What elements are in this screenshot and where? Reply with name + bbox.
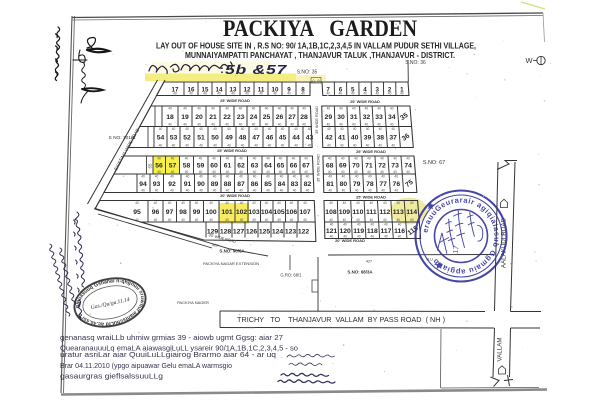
svg-text:40: 40 (231, 91, 235, 95)
svg-text:21: 21 (209, 114, 217, 121)
svg-text:108: 108 (325, 209, 337, 216)
svg-text:37: 37 (389, 135, 397, 142)
svg-text:40: 40 (225, 218, 229, 222)
svg-text:109: 109 (339, 209, 351, 216)
svg-text:40: 40 (203, 91, 207, 95)
svg-text:40: 40 (327, 122, 331, 126)
svg-text:40: 40 (292, 157, 296, 161)
svg-text:40: 40 (303, 201, 307, 205)
svg-text:40: 40 (186, 175, 190, 179)
svg-text:40: 40 (280, 188, 284, 192)
svg-text:40: 40 (239, 170, 243, 174)
svg-text:40: 40 (212, 170, 216, 174)
svg-text:91: 91 (184, 181, 192, 188)
svg-text:40: 40 (406, 170, 410, 174)
svg-text:124: 124 (272, 228, 284, 235)
svg-text:107: 107 (299, 209, 311, 216)
svg-text:40: 40 (329, 218, 333, 222)
svg-text:40: 40 (410, 218, 414, 222)
svg-text:40: 40 (213, 175, 217, 179)
svg-text:40: 40 (351, 135, 359, 142)
svg-text:uratur asriLar aiar QuuiLuLLg: uratur asriLar aiar QuuiLuLLgiairog Brar… (60, 350, 276, 359)
svg-text:99: 99 (193, 209, 201, 216)
svg-text:0: 0 (313, 79, 315, 83)
svg-text:40: 40 (377, 122, 381, 126)
svg-text:40: 40 (395, 175, 399, 179)
svg-text:40: 40 (227, 127, 231, 131)
svg-text:40: 40 (226, 188, 230, 192)
svg-text:40: 40 (168, 107, 172, 111)
svg-text:40: 40 (253, 175, 257, 179)
svg-text:40: 40 (189, 91, 193, 95)
svg-text:30: 30 (337, 114, 345, 121)
svg-text:40: 40 (277, 218, 281, 222)
svg-text:84: 84 (278, 181, 286, 188)
svg-text:40: 40 (279, 157, 283, 161)
svg-text:40: 40 (354, 157, 358, 161)
svg-text:40: 40 (353, 143, 357, 147)
svg-text:40: 40 (390, 122, 394, 126)
svg-text:73: 73 (391, 163, 399, 170)
svg-text:40: 40 (341, 157, 345, 161)
svg-text:40: 40 (226, 175, 230, 179)
svg-text:40: 40 (406, 157, 410, 161)
svg-text:40: 40 (239, 175, 243, 179)
svg-text:40: 40 (227, 143, 231, 147)
svg-text:40: 40 (306, 175, 310, 179)
svg-text:40: 40 (157, 157, 161, 161)
svg-text:62: 62 (237, 163, 245, 170)
svg-text:63: 63 (251, 163, 259, 170)
svg-text:40: 40 (209, 201, 213, 205)
svg-text:92: 92 (168, 181, 176, 188)
svg-text:40: 40 (154, 201, 158, 205)
svg-text:40: 40 (159, 143, 163, 147)
svg-text:40: 40 (376, 91, 380, 95)
svg-text:40: 40 (183, 122, 187, 126)
svg-text:40: 40 (327, 127, 331, 131)
svg-text:39: 39 (364, 135, 372, 142)
svg-text:126: 126 (246, 228, 258, 235)
svg-text:40: 40 (253, 188, 257, 192)
svg-text:28: 28 (300, 114, 308, 121)
svg-text:50: 50 (211, 135, 219, 142)
svg-text:25: 25 (263, 114, 271, 121)
svg-text:95: 95 (133, 209, 141, 216)
svg-text:40: 40 (199, 188, 203, 192)
svg-text:87: 87 (237, 181, 245, 188)
svg-text:40: 40 (367, 170, 371, 174)
svg-text:40: 40 (239, 122, 243, 126)
svg-text:W: W (525, 56, 533, 65)
svg-text:40: 40 (195, 218, 199, 222)
svg-text:40: 40 (266, 157, 270, 161)
svg-text:43: 43 (306, 135, 314, 142)
svg-text:40: 40 (371, 223, 375, 227)
svg-text:40: 40 (185, 127, 189, 131)
svg-text:40: 40 (281, 143, 285, 147)
svg-text:40: 40 (290, 218, 294, 222)
svg-text:93: 93 (153, 181, 161, 188)
svg-text:40: 40 (265, 122, 269, 126)
svg-text:25' WIDE ROAD: 25' WIDE ROAD (356, 195, 386, 200)
svg-text:40: 40 (391, 127, 395, 131)
svg-text:40: 40 (365, 107, 369, 111)
svg-text:40: 40 (155, 175, 159, 179)
svg-text:40: 40 (395, 188, 399, 192)
svg-text:25' WIDE ROAD: 25' WIDE ROAD (350, 99, 380, 104)
svg-text:gasaurgras gieflsalssuuLLg: gasaurgras gieflsalssuuLLg (60, 372, 163, 381)
svg-text:5b &57: 5b &57 (225, 63, 288, 77)
svg-text:40: 40 (356, 201, 360, 205)
svg-text:40: 40 (225, 201, 229, 205)
svg-text:64: 64 (264, 163, 272, 170)
svg-text:S.NO: 67: S.NO: 67 (423, 160, 445, 166)
svg-text:45: 45 (279, 135, 287, 142)
svg-text:53: 53 (170, 135, 178, 142)
svg-text:114: 114 (406, 209, 417, 216)
svg-text:40: 40 (213, 127, 217, 131)
svg-text:48: 48 (239, 135, 247, 142)
svg-text:40: 40 (304, 157, 308, 161)
svg-text:20: 20 (195, 114, 203, 121)
svg-text:69: 69 (339, 163, 347, 170)
svg-text:40: 40 (400, 91, 404, 95)
svg-text:71: 71 (365, 163, 373, 170)
svg-text:40: 40 (379, 127, 383, 131)
svg-text:52: 52 (183, 135, 191, 142)
svg-text:40: 40 (154, 218, 158, 222)
svg-text:40: 40 (278, 107, 282, 111)
svg-text:68: 68 (326, 163, 334, 170)
svg-text:97: 97 (166, 209, 174, 216)
svg-text:PACKIYA GARDEN: PACKIYA GARDEN (223, 16, 417, 42)
svg-text:25' WIDE ROAD: 25' WIDE ROAD (217, 148, 247, 153)
svg-text:40: 40 (343, 201, 347, 205)
svg-text:9: 9 (318, 79, 320, 83)
svg-text:23: 23 (237, 114, 245, 121)
svg-text:101: 101 (221, 209, 233, 216)
svg-text:22: 22 (223, 114, 231, 121)
svg-text:90: 90 (197, 181, 205, 188)
svg-text:40: 40 (266, 170, 270, 174)
svg-text:40: 40 (308, 127, 312, 131)
svg-text:40: 40 (354, 170, 358, 174)
svg-text:40: 40 (328, 170, 332, 174)
svg-text:25' WIDE ROAD: 25' WIDE ROAD (220, 98, 250, 103)
svg-text:40: 40 (241, 143, 245, 147)
svg-text:40: 40 (277, 201, 281, 205)
svg-text:40: 40 (340, 127, 344, 131)
svg-text:40: 40 (266, 175, 270, 179)
svg-text:113: 113 (393, 209, 404, 216)
svg-text:40: 40 (225, 107, 229, 111)
svg-text:40: 40 (211, 122, 215, 126)
svg-text:89: 89 (211, 181, 219, 188)
svg-text:56: 56 (155, 163, 163, 170)
svg-text:40: 40 (171, 170, 175, 174)
svg-text:40: 40 (396, 218, 400, 222)
svg-text:40: 40 (330, 223, 334, 227)
svg-text:40: 40 (239, 157, 243, 161)
svg-text:S.NO: 68/3A: S.NO: 68/3A (347, 270, 373, 275)
svg-text:40: 40 (290, 107, 294, 111)
svg-text:40: 40 (241, 127, 245, 131)
svg-text:127: 127 (233, 228, 245, 235)
svg-text:40: 40 (186, 188, 190, 192)
svg-text:40: 40 (199, 170, 203, 174)
svg-text:18: 18 (166, 114, 174, 121)
svg-text:78: 78 (366, 181, 374, 188)
svg-text:40: 40 (380, 170, 384, 174)
svg-text:40: 40 (157, 170, 161, 174)
svg-text:40: 40 (367, 157, 371, 161)
svg-text:40: 40 (253, 157, 257, 161)
svg-text:17: 17 (452, 245, 460, 254)
svg-text:40: 40 (352, 122, 356, 126)
svg-text:46: 46 (266, 135, 274, 142)
svg-text:122: 122 (298, 228, 310, 235)
svg-text:40: 40 (212, 157, 216, 161)
svg-text:40: 40 (252, 218, 256, 222)
svg-text:40: 40 (181, 201, 185, 205)
svg-text:40: 40 (294, 127, 298, 131)
svg-text:40: 40 (328, 157, 332, 161)
svg-text:40: 40 (390, 107, 394, 111)
svg-text:40: 40 (357, 223, 361, 227)
svg-text:40: 40 (185, 157, 189, 161)
svg-text:44: 44 (292, 135, 300, 142)
svg-text:40: 40 (377, 107, 381, 111)
svg-text:Brar 04.11.2010 (ypgo aipuawar: Brar 04.11.2010 (ypgo aipuawar Gelu emaL… (60, 361, 232, 370)
svg-text:103: 103 (248, 209, 260, 216)
svg-text:38: 38 (377, 135, 385, 142)
svg-text:60: 60 (210, 163, 218, 170)
svg-text:40: 40 (185, 170, 189, 174)
svg-text:35' WIDE ROAD: 35' WIDE ROAD (315, 106, 319, 134)
svg-text:40: 40 (155, 188, 159, 192)
svg-text:40: 40 (366, 143, 370, 147)
svg-text:427: 427 (366, 260, 372, 264)
svg-text:40: 40 (209, 218, 213, 222)
svg-text:40: 40 (168, 201, 172, 205)
svg-text:PACKIYA NAGAR EXTENSION: PACKIYA NAGAR EXTENSION (203, 261, 259, 266)
svg-text:58: 58 (183, 163, 191, 170)
svg-text:74: 74 (404, 163, 412, 170)
svg-text:40: 40 (363, 91, 367, 95)
svg-text:40: 40 (226, 170, 230, 174)
svg-text:40: 40 (353, 127, 357, 131)
svg-text:19: 19 (181, 114, 189, 121)
svg-text:40: 40 (393, 170, 397, 174)
svg-text:40: 40 (265, 201, 269, 205)
svg-text:LAY OUT OF HOUSE SITE IN , R.S: LAY OUT OF HOUSE SITE IN , R.S NO: 90/ 1… (156, 42, 476, 51)
svg-text:40: 40 (329, 201, 333, 205)
svg-text:40: 40 (213, 188, 217, 192)
svg-text:40: 40 (171, 157, 175, 161)
svg-text:40: 40 (195, 201, 199, 205)
svg-text:123: 123 (285, 228, 297, 235)
svg-text:40: 40 (398, 223, 402, 227)
svg-text:40: 40 (339, 107, 343, 111)
svg-text:57: 57 (169, 163, 177, 170)
svg-text:47: 47 (252, 135, 260, 142)
svg-text:40: 40 (268, 127, 272, 131)
svg-text:40: 40 (245, 91, 249, 95)
svg-text:40: 40 (253, 170, 257, 174)
svg-text:40: 40 (352, 107, 356, 111)
svg-text:40: 40 (398, 234, 402, 238)
svg-text:40: 40 (368, 175, 372, 179)
svg-text:102: 102 (236, 209, 248, 216)
svg-text:112: 112 (379, 209, 390, 216)
svg-text:40: 40 (292, 170, 296, 174)
svg-text:40: 40 (303, 218, 307, 222)
svg-text:54: 54 (157, 135, 165, 142)
svg-text:94: 94 (139, 181, 147, 188)
svg-text:40: 40 (293, 175, 297, 179)
svg-text:40: 40 (213, 143, 217, 147)
svg-text:S NO: 101/B: S NO: 101/B (109, 135, 136, 141)
svg-text:106: 106 (286, 209, 298, 216)
svg-text:40: 40 (279, 170, 283, 174)
svg-text:40: 40 (342, 175, 346, 179)
svg-text:40: 40 (302, 107, 306, 111)
svg-text:40: 40 (391, 143, 395, 147)
svg-text:40: 40 (306, 188, 310, 192)
svg-text:40: 40 (330, 234, 334, 238)
svg-text:40: 40 (217, 91, 221, 95)
svg-text:86: 86 (251, 181, 259, 188)
svg-text:genanasq wraiLLb uhmiw grmias: genanasq wraiLLb uhmiw grmias 39 - aiowb… (60, 333, 283, 342)
svg-text:51: 51 (197, 135, 205, 142)
svg-text:40: 40 (343, 218, 347, 222)
svg-text:40: 40 (355, 175, 359, 179)
svg-text:110: 110 (352, 209, 363, 216)
svg-text:40: 40 (302, 122, 306, 126)
svg-text:27: 27 (288, 114, 296, 121)
svg-text:40: 40 (290, 201, 294, 205)
svg-text:40: 40 (268, 143, 272, 147)
svg-text:32: 32 (363, 114, 371, 121)
svg-text::: : (220, 64, 224, 76)
svg-text:40: 40 (368, 188, 372, 192)
svg-text:40: 40 (365, 122, 369, 126)
svg-text:42: 42 (325, 135, 333, 142)
svg-text:40: 40 (340, 143, 344, 147)
svg-text:40: 40 (273, 91, 277, 95)
svg-text:25' WIDE ROAD: 25' WIDE ROAD (356, 149, 386, 154)
svg-text:40: 40 (185, 143, 189, 147)
svg-text:40: 40 (181, 218, 185, 222)
svg-text:76: 76 (393, 181, 401, 188)
svg-text:24: 24 (250, 114, 258, 121)
svg-text:40: 40 (168, 218, 172, 222)
svg-text:S.NO: 90/6A: S.NO: 90/6A (219, 249, 245, 254)
svg-text:96: 96 (152, 209, 160, 216)
svg-text:40: 40 (410, 201, 414, 205)
svg-text:79: 79 (353, 181, 361, 188)
svg-text:40: 40 (159, 127, 163, 131)
svg-text:40: 40 (371, 234, 375, 238)
svg-text:40: 40 (366, 127, 370, 131)
svg-text:83: 83 (291, 181, 299, 188)
svg-text:98: 98 (179, 209, 187, 216)
svg-text:66: 66 (290, 163, 298, 170)
svg-text:61: 61 (224, 163, 232, 170)
svg-text:40: 40 (252, 122, 256, 126)
svg-text:29: 29 (325, 114, 333, 121)
svg-text:40: 40 (304, 170, 308, 174)
svg-text:40: 40 (141, 175, 145, 179)
svg-text:40: 40 (294, 143, 298, 147)
svg-text:40: 40 (383, 218, 387, 222)
svg-text:40: 40 (254, 143, 258, 147)
svg-text:G.RO: 68/1: G.RO: 68/1 (280, 273, 302, 278)
svg-text:40: 40 (381, 175, 385, 179)
svg-text:40: 40 (379, 143, 383, 147)
svg-text:40: 40 (326, 91, 330, 95)
svg-text:40: 40 (170, 175, 174, 179)
svg-text:80: 80 (340, 181, 348, 188)
svg-text:40: 40 (287, 91, 291, 95)
svg-text:111: 111 (366, 209, 377, 216)
svg-text:77: 77 (379, 181, 387, 188)
svg-text:40: 40 (384, 234, 388, 238)
svg-text:105: 105 (273, 209, 285, 216)
svg-text:40: 40 (168, 122, 172, 126)
svg-text:100: 100 (205, 209, 217, 216)
svg-text:40: 40 (381, 188, 385, 192)
svg-text:40: 40 (280, 175, 284, 179)
svg-text:40: 40 (301, 91, 305, 95)
svg-text:26: 26 (276, 114, 284, 121)
svg-text:40: 40 (199, 157, 203, 161)
svg-text:88: 88 (224, 181, 232, 188)
svg-text:128: 128 (220, 228, 232, 235)
svg-text:40: 40 (239, 107, 243, 111)
svg-text:40: 40 (351, 91, 355, 95)
svg-text:PACKIYA NAGER: PACKIYA NAGER (177, 300, 209, 305)
svg-text:40: 40 (355, 188, 359, 192)
svg-text:65: 65 (277, 163, 285, 170)
svg-text:40: 40 (211, 107, 215, 111)
svg-text:40: 40 (328, 188, 332, 192)
svg-text:40: 40 (339, 91, 343, 95)
svg-text:40: 40 (135, 201, 139, 205)
svg-text:85: 85 (264, 181, 272, 188)
svg-text:104: 104 (261, 209, 273, 216)
svg-text:20' WIDE ROAD: 20' WIDE ROAD (335, 238, 365, 243)
svg-text:40: 40 (197, 107, 201, 111)
svg-text:72: 72 (378, 163, 386, 170)
svg-text:40: 40 (252, 107, 256, 111)
svg-text:40: 40 (281, 127, 285, 131)
svg-text:40: 40 (254, 127, 258, 131)
svg-text:49: 49 (225, 135, 233, 142)
svg-text:40: 40 (265, 107, 269, 111)
svg-text:40: 40 (393, 157, 397, 161)
svg-text:40: 40 (341, 170, 345, 174)
svg-text:40: 40 (388, 91, 392, 95)
svg-text:40: 40 (278, 122, 282, 126)
svg-text:40: 40 (396, 201, 400, 205)
svg-text:40: 40 (343, 223, 347, 227)
svg-text:40: 40 (342, 188, 346, 192)
svg-text:40: 40 (199, 127, 203, 131)
svg-text:40: 40 (380, 157, 384, 161)
svg-text:67: 67 (302, 163, 310, 170)
